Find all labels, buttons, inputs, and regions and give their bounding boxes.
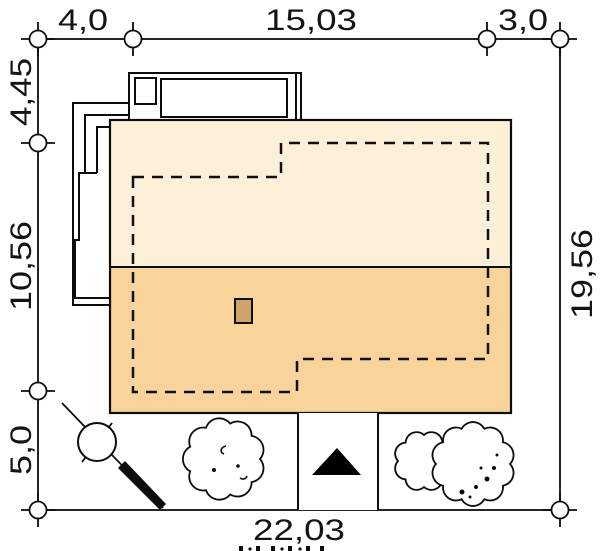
canopy-dot [474, 485, 478, 489]
canopy-dot [460, 490, 465, 495]
dim-label-right: 19,56 [566, 229, 599, 319]
survey-point [552, 31, 569, 48]
service-line-wedge [118, 461, 166, 510]
canopy-dot [492, 466, 496, 470]
driveway [298, 413, 378, 510]
survey-point [30, 31, 47, 48]
canopy-dot [480, 467, 483, 470]
canopy-dot [485, 477, 490, 482]
entry-porch [129, 73, 301, 121]
site-plan-canvas: 4,0 15,03 3,0 4,45 10,56 5,0 19,56 22,03 [0, 0, 600, 551]
dim-label-bottom: 22,03 [253, 514, 345, 547]
survey-point [125, 31, 142, 48]
dim-label-top-center: 15,03 [265, 4, 357, 37]
survey-point [30, 135, 47, 152]
porch-pillar [135, 78, 156, 104]
survey-point [479, 31, 496, 48]
dim-label-top-right: 3,0 [498, 4, 548, 37]
canopy-dot [469, 496, 472, 499]
tree-icon-left [183, 418, 264, 499]
utility-pole-icon [78, 423, 116, 461]
survey-point [30, 383, 47, 400]
porch-inner [161, 79, 287, 117]
tree-canopy [432, 422, 513, 506]
tree-canopy [183, 418, 264, 499]
dim-label-top-left: 4,0 [58, 4, 108, 37]
chimney [235, 299, 252, 323]
canopy-dot [236, 464, 240, 468]
site-plan: 4,0 15,03 3,0 4,45 10,56 5,0 19,56 22,03 [0, 0, 600, 551]
dim-label-left-middle: 10,56 [5, 221, 38, 311]
survey-point [552, 502, 569, 519]
survey-point [30, 502, 47, 519]
tree-icon-right-pair [395, 422, 513, 506]
house-roof [110, 120, 511, 413]
utility-connection [62, 403, 166, 510]
dim-label-left-lower: 5,0 [5, 425, 38, 475]
canopy-dot [212, 468, 216, 472]
canopy-dot [496, 454, 499, 457]
dim-label-left-upper: 4,45 [5, 58, 38, 126]
